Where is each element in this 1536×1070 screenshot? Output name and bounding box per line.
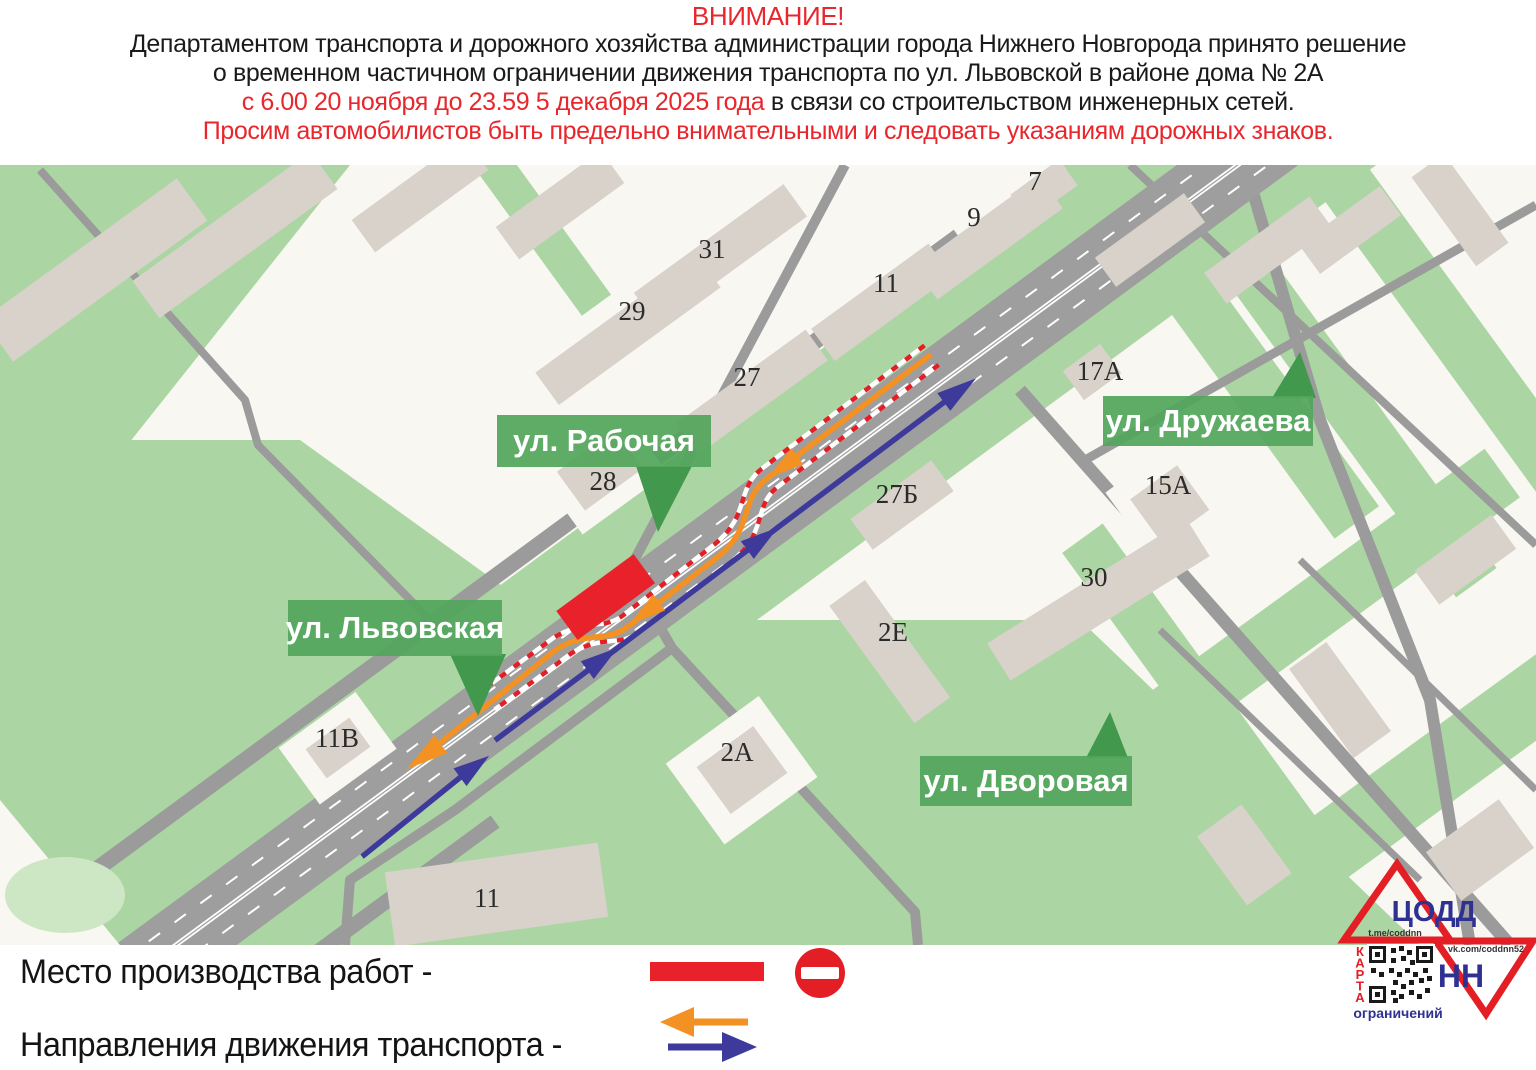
street-label-text: ул. Рабочая — [513, 423, 695, 458]
logo-org-name: ЦОДД — [1392, 896, 1477, 928]
street-label-text: ул. Дружаева — [1106, 403, 1311, 438]
building-number: 2А — [721, 737, 755, 767]
legend-work-site-label: Место производства работ - — [20, 953, 432, 991]
building-number: 9 — [967, 202, 981, 232]
street-label-text: ул. Дворовая — [923, 763, 1128, 798]
legend-blue-arrow-icon — [668, 1032, 757, 1062]
logo-vk: vk.com/coddnn52 — [1448, 944, 1524, 954]
logo-region: НН — [1438, 958, 1484, 994]
legend-work-zone-swatch — [650, 962, 764, 981]
legend: Место производства работ - Направления д… — [20, 948, 845, 1064]
building-number: 27 — [734, 362, 761, 392]
no-entry-icon — [795, 948, 845, 998]
map-scene: 31 29 27 28 11 9 7 17А 15А 30 27Б 2Е 2А … — [0, 0, 1536, 1070]
legend-directions-label: Направления движения транспорта - — [20, 1026, 562, 1064]
building-number: 17А — [1077, 356, 1124, 386]
building-number: 15А — [1145, 470, 1192, 500]
building-number: 30 — [1081, 562, 1108, 592]
building-number: 31 — [699, 234, 726, 264]
logo-telegram: t.me/coddnn — [1368, 928, 1422, 938]
building-number: 7 — [1028, 166, 1042, 196]
building-number: 11 — [873, 268, 899, 298]
building-number: 11 — [474, 883, 500, 913]
street-label-text: ул. Львовская — [286, 610, 505, 645]
building-number: 11В — [315, 723, 359, 753]
qr-caption-vertical: КАРТА — [1355, 944, 1365, 1005]
qr-code — [1367, 944, 1435, 1005]
legend-orange-arrow-icon — [660, 1007, 748, 1037]
building-number: 28 — [590, 466, 617, 496]
qr-caption-bottom: ограничений — [1353, 1005, 1442, 1021]
pond — [5, 857, 125, 933]
map: 31 29 27 28 11 9 7 17А 15А 30 27Б 2Е 2А … — [0, 0, 1536, 1070]
building-number: 2Е — [878, 617, 908, 647]
building-number: 29 — [619, 296, 646, 326]
building-number: 27Б — [876, 479, 919, 509]
poster: ВНИМАНИЕ! Департаментом транспорта и дор… — [0, 0, 1536, 1070]
